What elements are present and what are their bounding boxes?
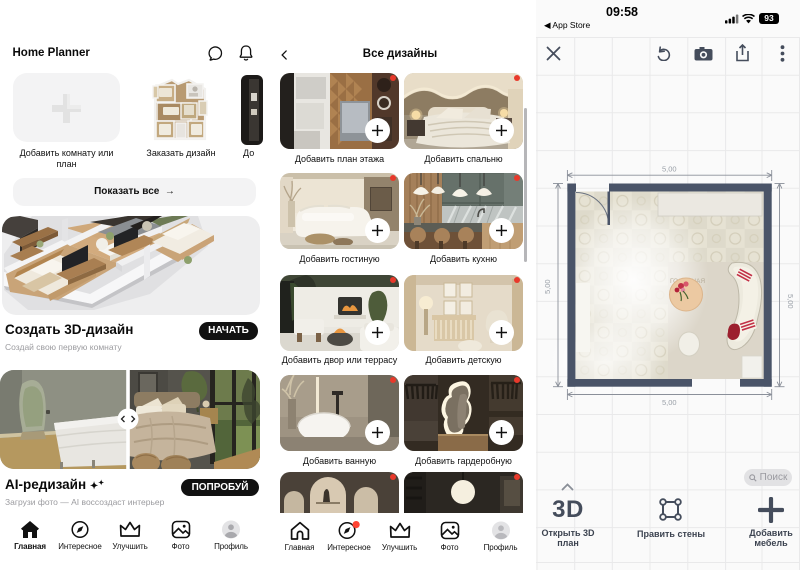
svg-text:5,00: 5,00	[786, 294, 795, 309]
svg-text:5,00: 5,00	[662, 398, 677, 407]
svg-text:5,00: 5,00	[543, 279, 552, 294]
svg-text:5,00: 5,00	[662, 165, 677, 174]
